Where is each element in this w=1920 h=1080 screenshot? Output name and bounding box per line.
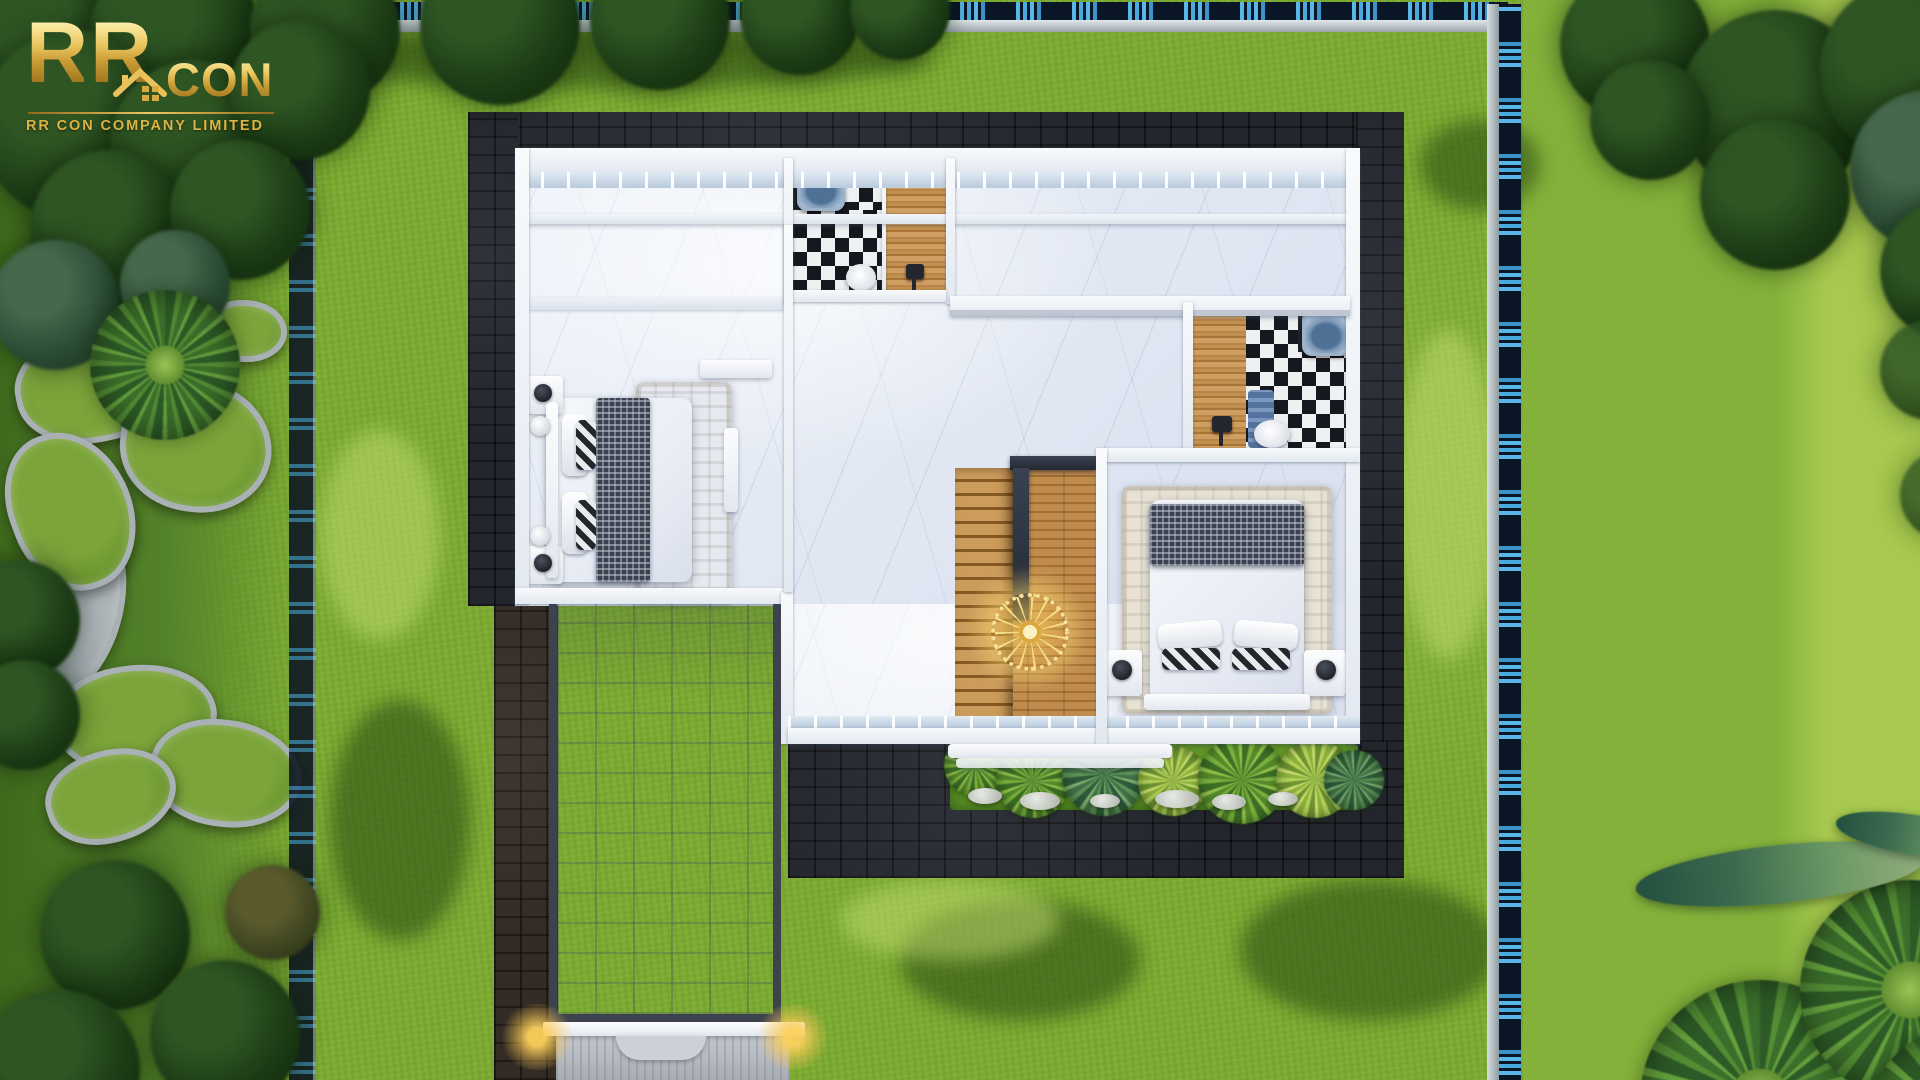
wall-east <box>1346 148 1360 744</box>
logo-letter-r1: R <box>26 20 84 87</box>
wall-lounge-south-railing <box>950 296 1350 316</box>
bathroom2-shower-stem <box>1219 432 1223 446</box>
driveway-border-east <box>773 592 781 1022</box>
fan-palm <box>90 290 240 440</box>
wall-bathroom2-south <box>1104 448 1360 462</box>
bathroom1-shower-head <box>906 264 924 279</box>
wall-stairwell-east <box>1096 448 1107 744</box>
bedroom1-stool <box>530 416 550 436</box>
wall-bedroom1-east <box>784 225 793 592</box>
bedroom1-lamp <box>534 554 552 572</box>
bedroom1-throw-blanket <box>596 398 650 582</box>
walkway-left <box>468 112 518 606</box>
bedroom1-wardrobe <box>529 298 784 310</box>
bedroom2-lamp <box>1112 660 1132 680</box>
bedroom1-foot-bench <box>724 428 738 512</box>
bedroom2-accent-pillow <box>1232 648 1290 670</box>
bedroom2-pillow <box>1157 619 1223 650</box>
grass-light-patch <box>320 430 440 640</box>
wall-bathroom1-south <box>793 290 946 302</box>
wall-south <box>788 728 1360 744</box>
bedroom2-accent-pillow <box>1162 648 1220 670</box>
palm-core <box>1729 1069 1791 1080</box>
palm-core <box>1881 961 1920 1018</box>
porch-step-1 <box>948 744 1172 758</box>
bedroom1-accent-pillow <box>576 500 596 550</box>
window-band-south <box>788 716 1360 728</box>
fence-pickets <box>1499 4 1521 1080</box>
fence-base-rail <box>1487 4 1499 1080</box>
brand-logo: R R CON RR CON COMPANY LIMITED <box>26 20 282 134</box>
logo-roof-icon <box>112 66 170 102</box>
garden-plant <box>1324 750 1384 810</box>
grass-light-patch <box>840 880 1060 960</box>
wall-bedroom1-south <box>515 588 791 604</box>
bedroom1-dresser <box>700 360 772 378</box>
shrub <box>225 865 320 960</box>
bedroom2-headboard <box>1144 694 1310 710</box>
beam-north-inner <box>527 214 1348 224</box>
walkway-right <box>1356 112 1404 814</box>
fence-east <box>1487 4 1521 1080</box>
palm-core <box>146 346 185 385</box>
garden-stone <box>968 788 1002 804</box>
bathroom2-toilet <box>1254 420 1290 448</box>
grass-shade-patch <box>1240 880 1500 1020</box>
garden-stone <box>1020 792 1060 810</box>
bedroom2-pillow <box>1233 619 1299 650</box>
gate-light-east <box>756 1004 830 1070</box>
bathroom2-shower-head <box>1212 416 1232 432</box>
driveway-border-west <box>549 592 557 1022</box>
grass-light-patch <box>1398 330 1498 660</box>
wall-bathroom2-west <box>1183 302 1193 452</box>
bathroom2-sink <box>1302 310 1350 356</box>
garden-stone <box>1268 792 1298 806</box>
wall-north <box>515 148 1360 172</box>
gate-light-west <box>500 1004 574 1070</box>
tree-canopy <box>1590 60 1710 180</box>
garden-plant <box>1198 736 1286 824</box>
driveway <box>557 592 773 1014</box>
logo-tagline: RR CON COMPANY LIMITED <box>26 118 264 134</box>
bedroom1-lamp <box>534 384 552 402</box>
wall-bathroom1-east <box>946 158 955 304</box>
garden-stone <box>1212 794 1246 810</box>
bathroom1-toilet <box>846 264 876 291</box>
aerial-render-canvas: R R CON RR CON COMPANY LIMITED <box>0 0 1920 1080</box>
garden-stone <box>1155 790 1199 808</box>
window-band-north <box>515 172 1360 188</box>
tree-canopy <box>1700 120 1850 270</box>
logo-divider <box>28 112 274 114</box>
bedroom2-throw-blanket <box>1150 504 1304 566</box>
chandelier <box>991 593 1069 671</box>
logo-suffix: CON <box>166 56 273 103</box>
wall-west <box>515 148 529 604</box>
bedroom1-stool <box>530 526 550 546</box>
grass-shade-patch <box>330 700 470 940</box>
garden-stone <box>1090 794 1120 808</box>
bedroom1-accent-pillow <box>576 420 596 470</box>
driveway-border-south <box>549 1014 781 1022</box>
gate-half-step <box>616 1036 706 1060</box>
porch-step-2 <box>956 758 1164 768</box>
grass-shade-patch <box>1420 120 1540 210</box>
bedroom2-lamp <box>1316 660 1336 680</box>
